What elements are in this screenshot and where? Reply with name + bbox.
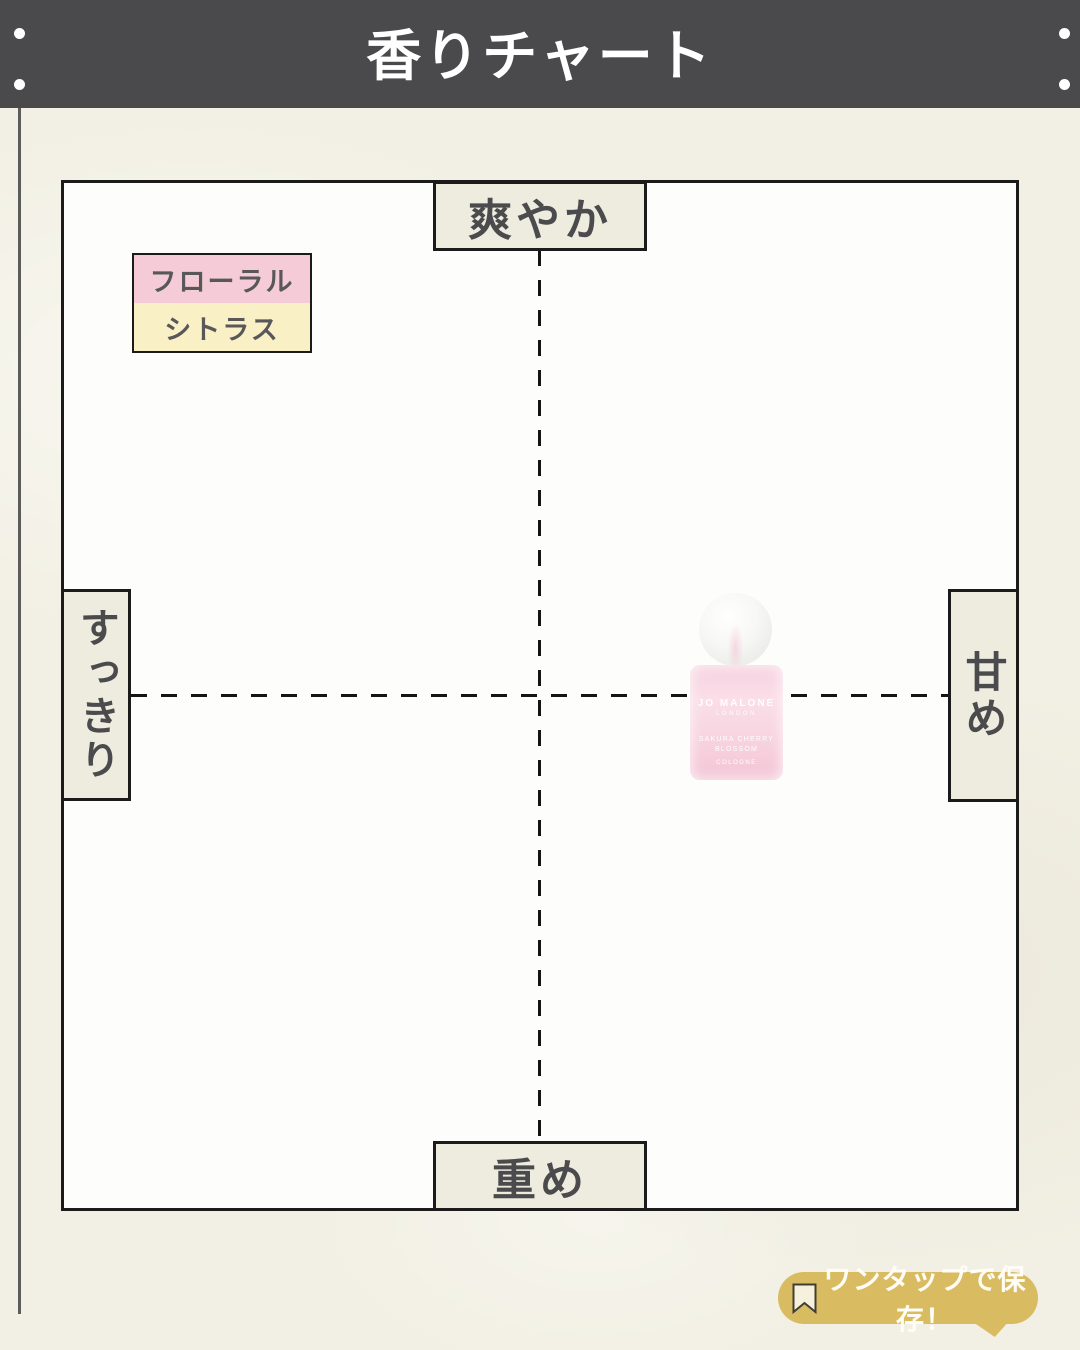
legend-item-floral: フローラル [134,255,310,303]
punch-dot-top-left [14,28,25,39]
save-badge-label: ワンタップで保存！ [818,1258,1038,1338]
axis-label-right: 甘め [948,589,1019,802]
infographic-canvas: 香りチャート 爽やか 重め すっきり 甘め フローラル シトラス JO MALO… [0,0,1080,1350]
axis-label-right-text: 甘め [953,650,1014,742]
bottle-type-text: COLOGNE [716,758,757,768]
legend-item-floral-label: フローラル [150,260,295,299]
axis-label-top: 爽やか [433,181,647,251]
save-badge[interactable]: ワンタップで保存！ [778,1272,1038,1324]
left-spine-line [18,108,21,1314]
legend-item-citrus-label: シトラス [164,308,279,347]
bookmark-icon [791,1283,818,1314]
punch-dot-top-right [1059,28,1070,39]
header-bar: 香りチャート [0,0,1080,108]
bottle-dip-tube [728,624,743,666]
bottle-brand-text: JO MALONE [698,698,775,710]
legend-item-citrus: シトラス [134,303,310,351]
axis-label-bottom: 重め [433,1141,647,1211]
axis-label-bottom-text: 重め [492,1144,588,1208]
page-title: 香りチャート [0,0,1080,108]
bottle-city-text: LONDON [716,710,757,719]
axis-label-left-text: すっきり [67,607,125,783]
punch-dot-bottom-right [1059,79,1070,90]
bottle-body: JO MALONE LONDON SAKURA CHERRY BLOSSOM C… [690,665,783,780]
horizontal-dashed-axis [131,694,948,697]
bottle-name-line2: BLOSSOM [715,745,758,755]
axis-label-left: すっきり [61,589,131,801]
punch-dot-bottom-left [14,79,25,90]
scent-type-legend: フローラル シトラス [132,253,312,353]
axis-label-top-text: 爽やか [468,184,612,248]
bottle-name-line1: SAKURA CHERRY [699,735,774,745]
